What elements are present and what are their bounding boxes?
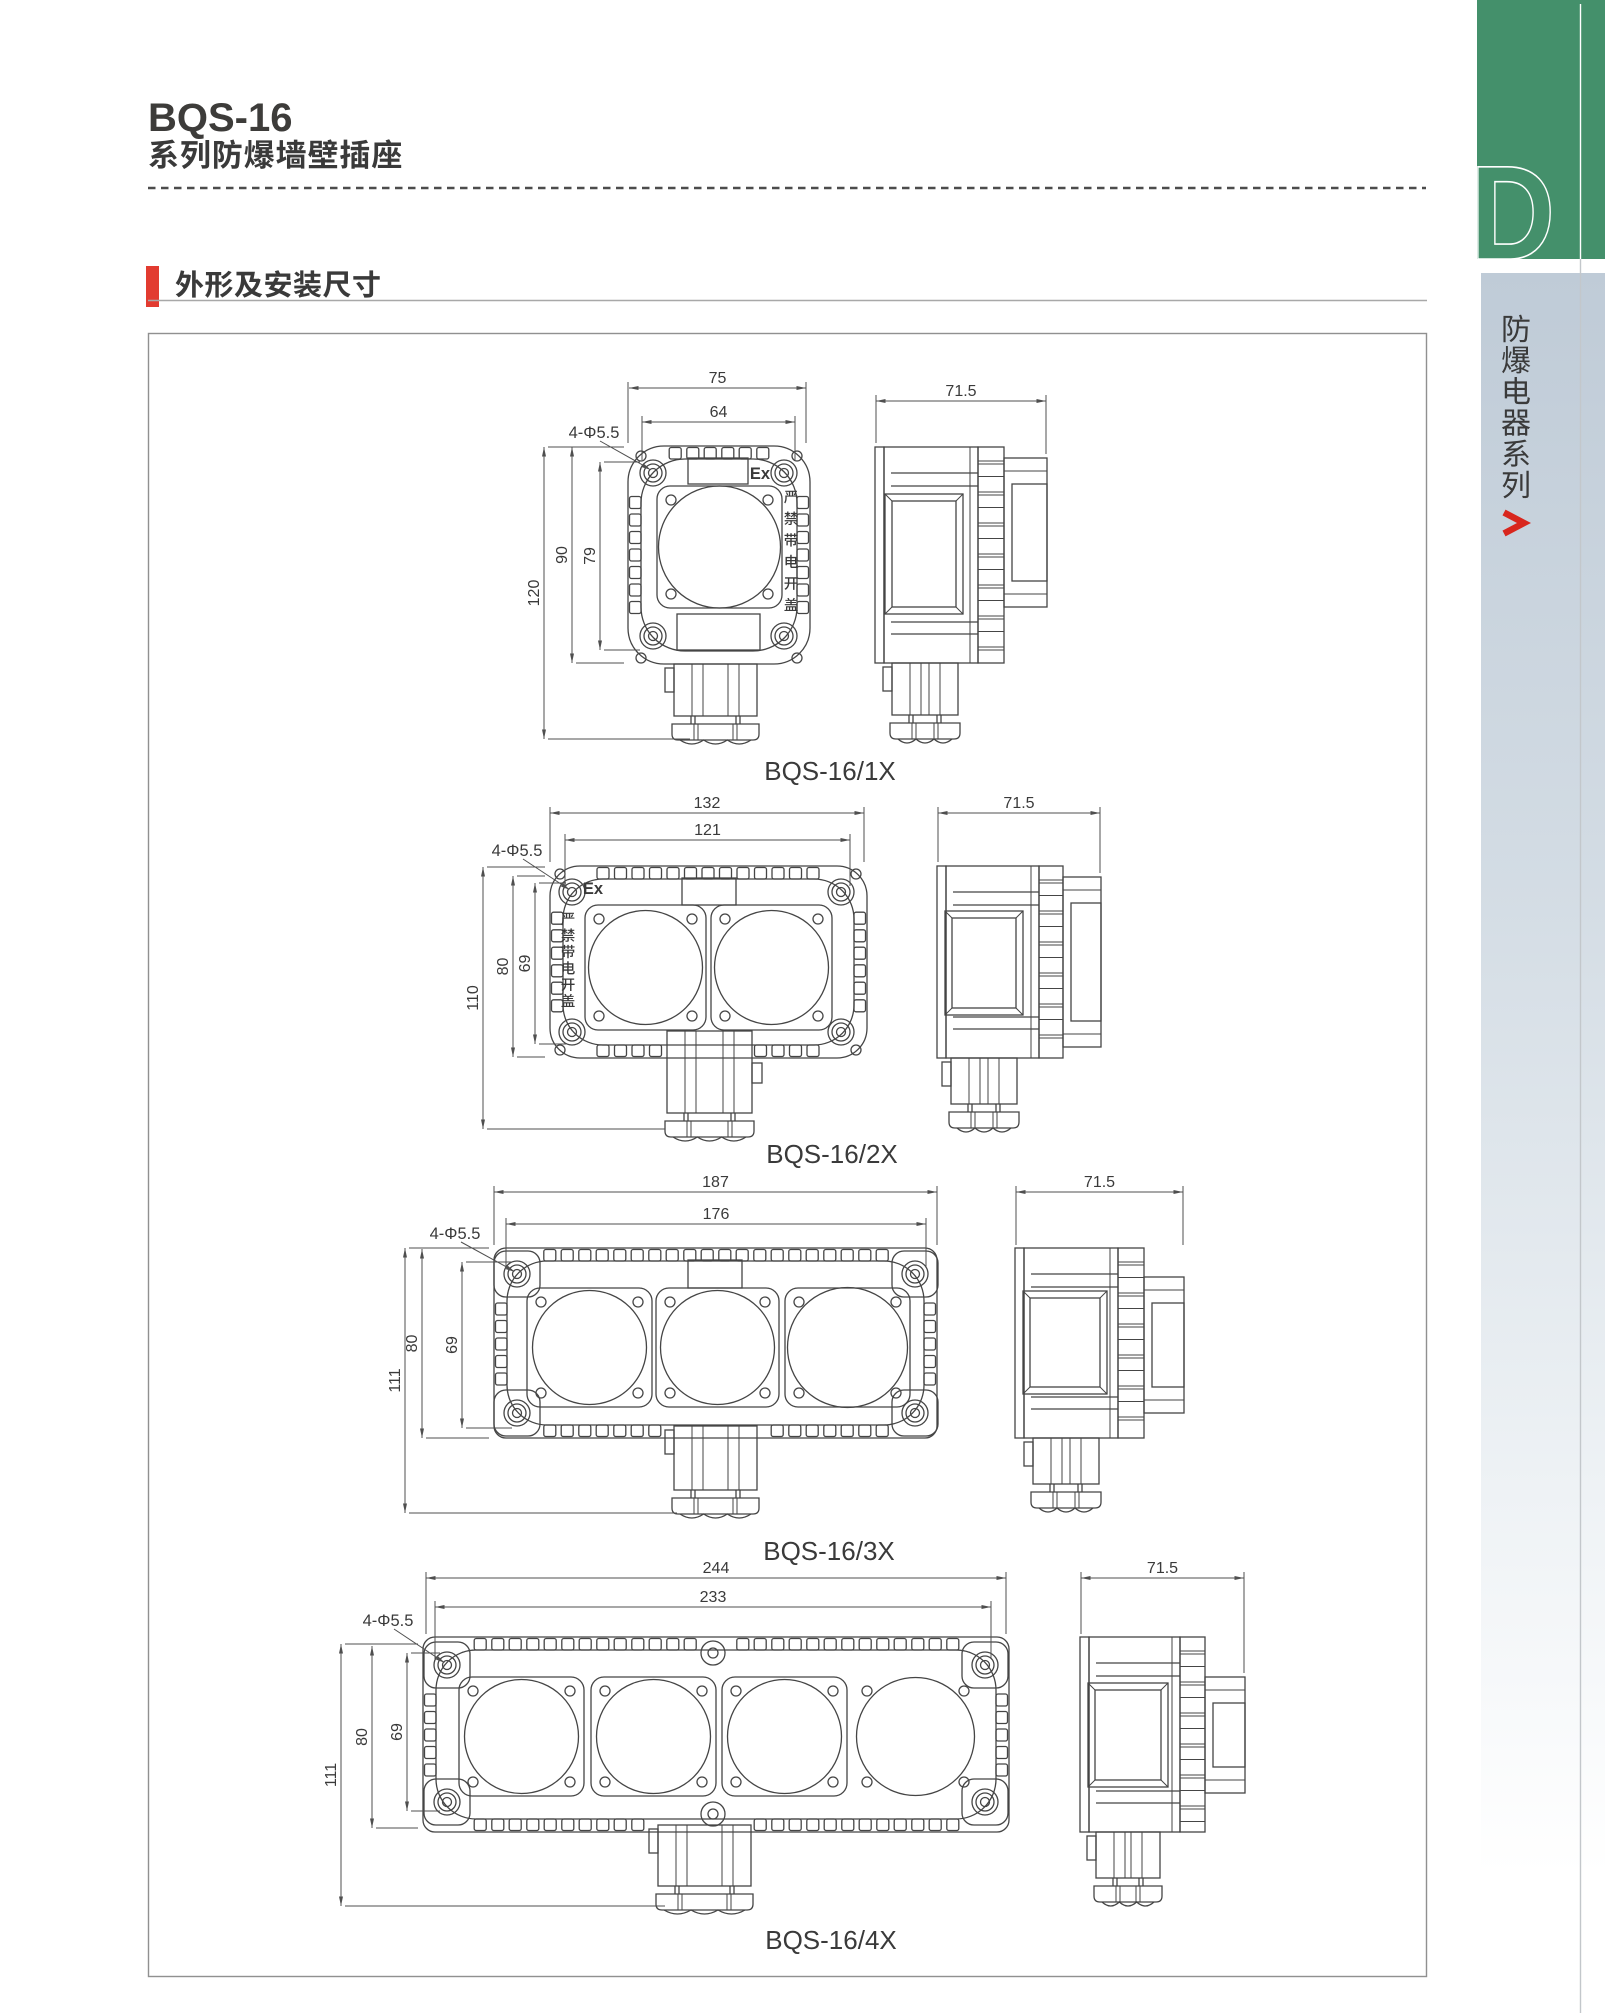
svg-text:4-Φ5.5: 4-Φ5.5 bbox=[569, 424, 620, 442]
svg-text:4-Φ5.5: 4-Φ5.5 bbox=[430, 1225, 481, 1243]
svg-text:111: 111 bbox=[387, 1368, 404, 1392]
svg-text:BQS-16/1X: BQS-16/1X bbox=[764, 756, 896, 786]
svg-text:79: 79 bbox=[582, 547, 599, 565]
svg-text:121: 121 bbox=[694, 822, 721, 839]
svg-text:176: 176 bbox=[703, 1206, 730, 1223]
svg-text:244: 244 bbox=[703, 1560, 730, 1577]
svg-text:132: 132 bbox=[694, 795, 721, 812]
svg-text:110: 110 bbox=[465, 985, 482, 1011]
svg-text:BQS-16/3X: BQS-16/3X bbox=[763, 1536, 895, 1566]
svg-text:BQS-16/2X: BQS-16/2X bbox=[766, 1139, 898, 1169]
svg-text:80: 80 bbox=[354, 1728, 371, 1746]
svg-text:233: 233 bbox=[700, 1589, 727, 1606]
svg-text:BQS-16: BQS-16 bbox=[148, 96, 293, 140]
svg-text:Ex: Ex bbox=[583, 880, 604, 898]
svg-text:111: 111 bbox=[323, 1763, 340, 1787]
svg-text:D: D bbox=[1470, 138, 1555, 288]
svg-text:4-Φ5.5: 4-Φ5.5 bbox=[492, 842, 543, 860]
svg-text:187: 187 bbox=[702, 1174, 729, 1191]
svg-text:80: 80 bbox=[495, 958, 512, 976]
svg-text:4-Φ5.5: 4-Φ5.5 bbox=[363, 1612, 414, 1630]
svg-text:90: 90 bbox=[554, 546, 571, 564]
svg-text:Ex: Ex bbox=[750, 465, 771, 483]
svg-text:71.5: 71.5 bbox=[1084, 1174, 1115, 1191]
svg-text:75: 75 bbox=[709, 370, 727, 387]
svg-text:69: 69 bbox=[389, 1723, 406, 1741]
svg-text:71.5: 71.5 bbox=[1003, 795, 1034, 812]
svg-text:120: 120 bbox=[526, 580, 543, 607]
svg-text:BQS-16/4X: BQS-16/4X bbox=[765, 1925, 897, 1955]
svg-text:71.5: 71.5 bbox=[945, 383, 976, 400]
svg-text:69: 69 bbox=[517, 955, 534, 973]
svg-text:80: 80 bbox=[404, 1335, 421, 1353]
svg-text:71.5: 71.5 bbox=[1147, 1560, 1178, 1577]
svg-text:69: 69 bbox=[444, 1336, 461, 1354]
svg-text:64: 64 bbox=[710, 404, 728, 421]
